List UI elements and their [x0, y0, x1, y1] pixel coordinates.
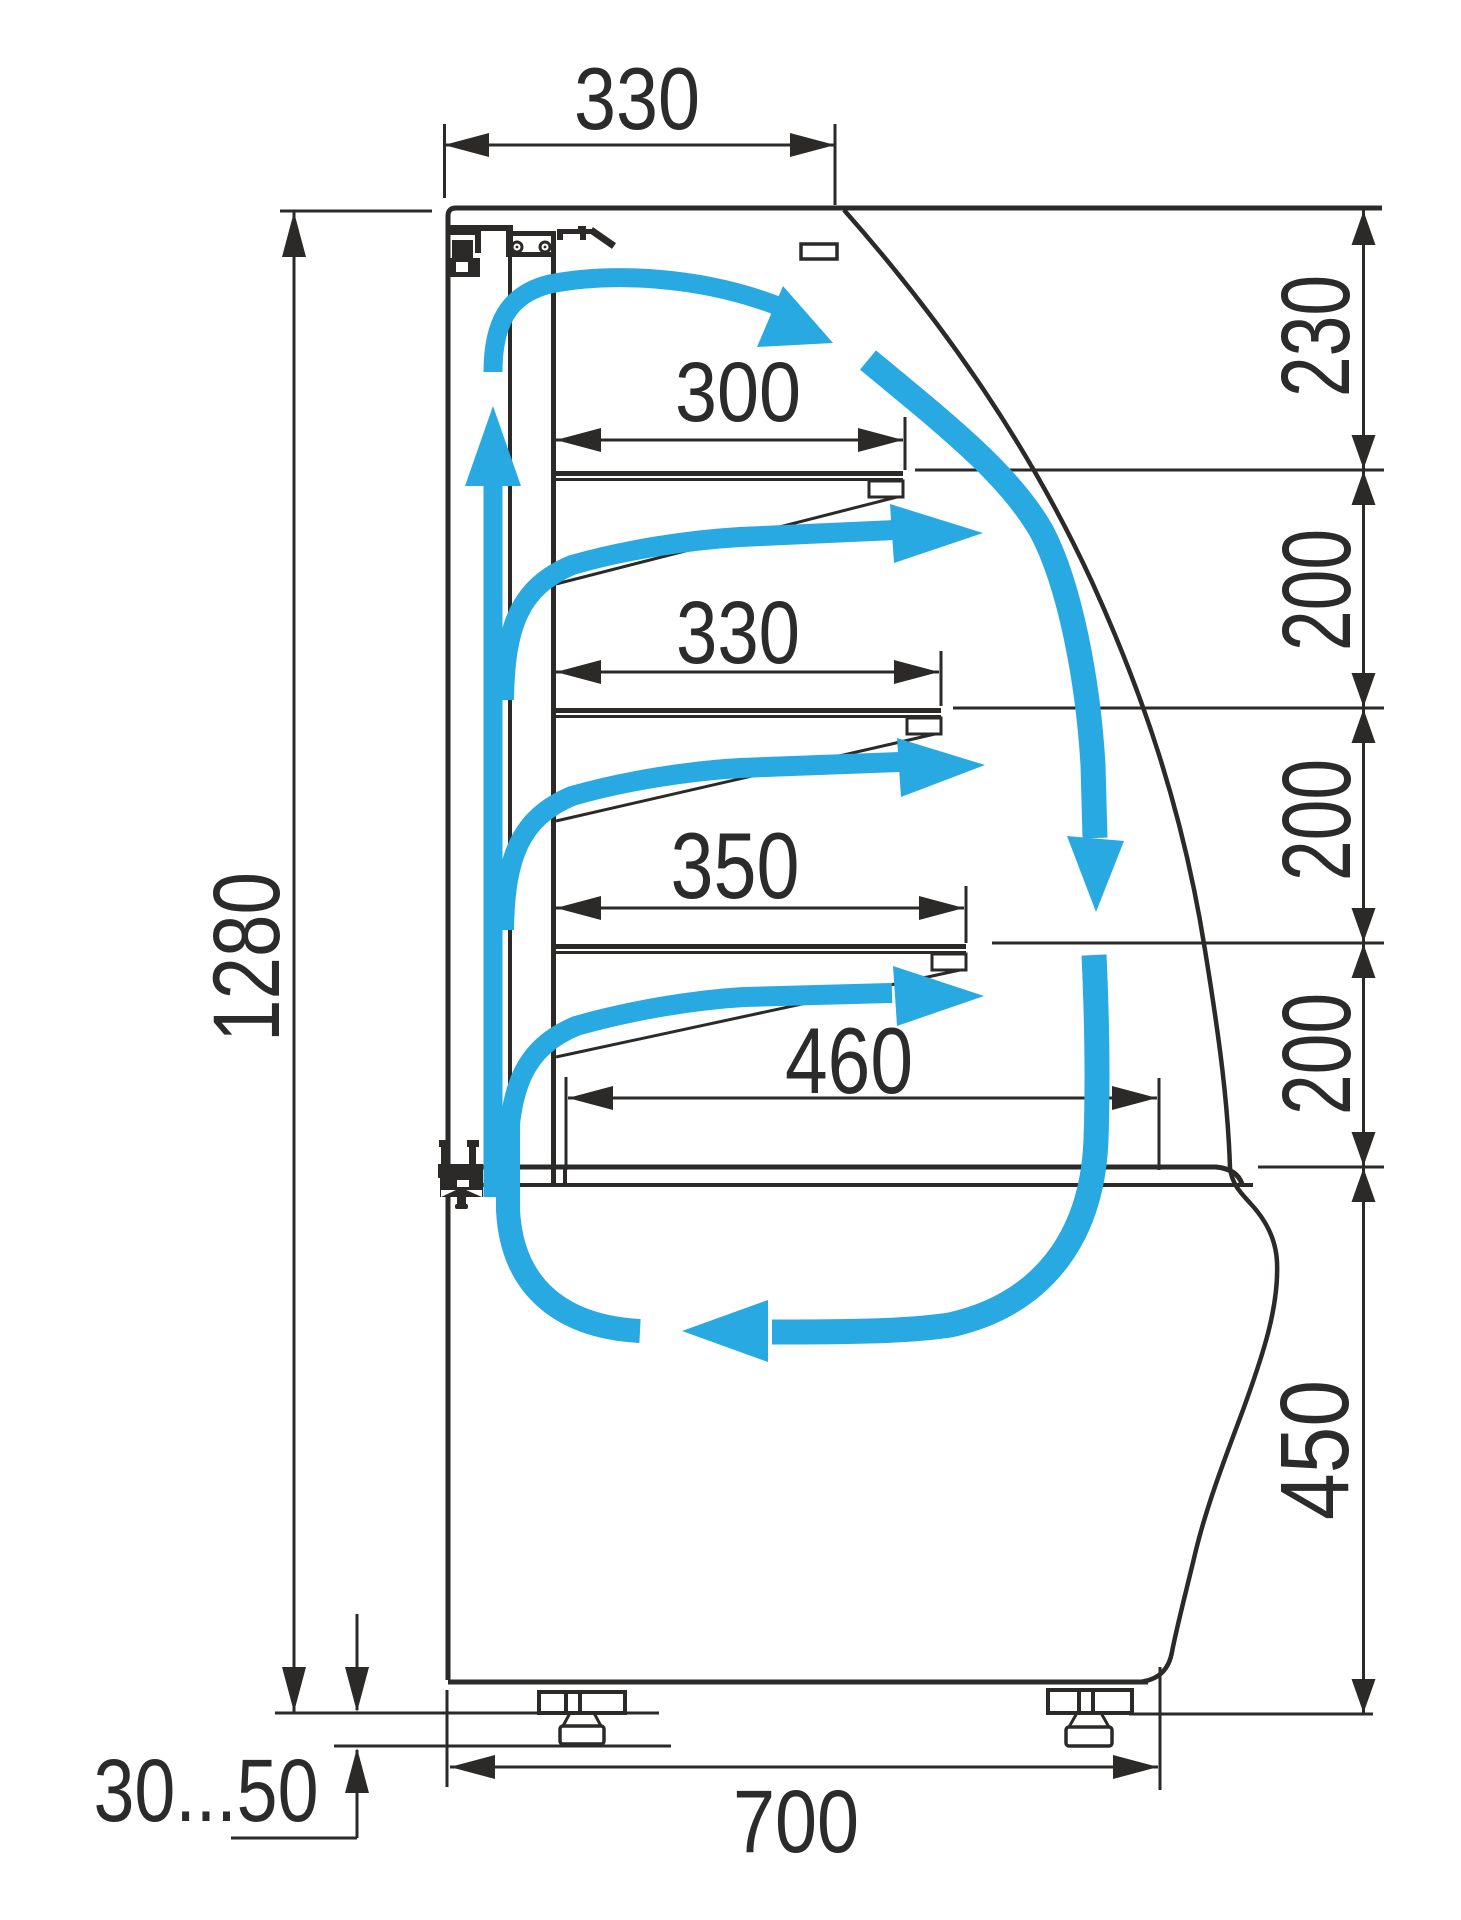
svg-text:460: 460 [785, 1008, 913, 1113]
svg-text:230: 230 [1261, 275, 1370, 397]
svg-text:450: 450 [1260, 1380, 1369, 1520]
svg-text:1280: 1280 [194, 872, 300, 1042]
svg-text:200: 200 [1262, 759, 1371, 881]
svg-text:200: 200 [1262, 993, 1371, 1115]
svg-text:300: 300 [675, 345, 801, 439]
svg-text:330: 330 [676, 582, 800, 682]
svg-text:350: 350 [671, 813, 800, 918]
svg-text:30...50: 30...50 [94, 1740, 319, 1840]
svg-text:200: 200 [1262, 529, 1371, 651]
svg-text:700: 700 [733, 1771, 859, 1871]
svg-text:330: 330 [574, 49, 700, 148]
